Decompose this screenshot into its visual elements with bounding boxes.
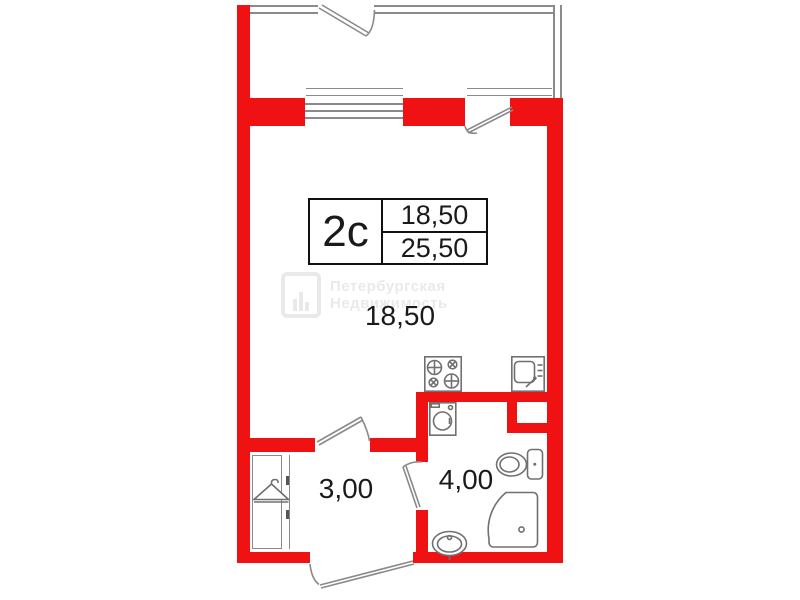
closet-sliding-door [281,455,290,549]
balcony-inner-wall-b [403,98,465,126]
unit-code: 2c [310,200,383,263]
right-outer-wall [547,98,563,563]
window-pane-line [305,103,403,105]
closet-door-handle [286,510,289,519]
stove-icon [425,357,461,391]
unit-info-box: 2c 18,50 25,50 [308,198,488,265]
room-door-leaf [317,417,370,445]
floor-plan: 2c 18,50 25,50 Петербургская Недвижимост… [0,0,800,600]
balcony-right-wall [553,5,562,98]
window-pane-line [305,110,403,112]
washing-machine-icon [430,403,456,435]
kitchen-sink-icon [512,357,544,391]
main-room-area-label: 18,50 [340,300,460,332]
unit-total-area: 25,50 [383,233,486,264]
balcony-threshold-right [467,88,552,96]
bathroom-left-wall-b [416,510,428,552]
balcony-top-wall-left [250,5,318,14]
bathroom-left-wall-a [416,392,428,462]
bathroom-area-label: 4,00 [416,464,516,496]
main-window [305,98,403,126]
balcony-inner-wall-a [250,98,305,126]
watermark-line1: Петербургская [330,278,448,295]
unit-living-area: 18,50 [383,200,486,233]
balcony-top-wall-right [374,5,562,14]
watermark-logo-icon [281,272,321,318]
balcony-threshold-left [306,88,403,96]
hallway-area-label: 3,00 [296,473,396,505]
hallway-top-wall-a [250,438,315,452]
kitchen-bathroom-wall [416,392,551,402]
balcony-door-leaf [465,107,513,133]
balcony-window-leaf [319,5,375,36]
closet-door-handle [286,476,289,485]
shower-icon [488,493,537,548]
left-outer-wall [237,5,250,563]
entrance-door-leaf [310,561,414,588]
window-pane-line [305,117,403,119]
bottom-outer-wall-b [413,552,563,563]
vent-shaft-bottom-wall [507,423,547,433]
bottom-outer-wall-a [237,552,310,563]
